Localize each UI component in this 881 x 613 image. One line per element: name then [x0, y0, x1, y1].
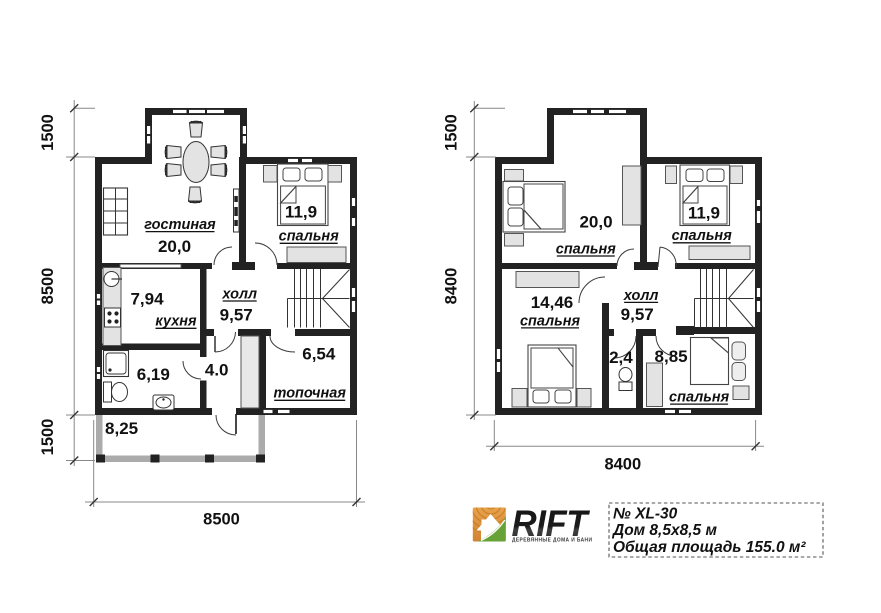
- svg-text:6,19: 6,19: [137, 365, 170, 384]
- svg-text:8500: 8500: [39, 268, 57, 305]
- svg-text:20,0: 20,0: [579, 213, 612, 232]
- svg-text:14,46: 14,46: [531, 293, 574, 312]
- svg-text:7,94: 7,94: [130, 290, 164, 309]
- svg-text:9,57: 9,57: [220, 306, 253, 325]
- svg-text:спальня: спальня: [556, 241, 617, 257]
- svg-text:1500: 1500: [39, 114, 57, 151]
- svg-text:топочная: топочная: [274, 386, 347, 402]
- svg-text:6,54: 6,54: [302, 344, 336, 363]
- svg-text:спальня: спальня: [669, 390, 730, 406]
- svg-text:кухня: кухня: [155, 314, 197, 330]
- svg-text:холл: холл: [221, 286, 257, 302]
- svg-text:спальня: спальня: [279, 229, 340, 245]
- svg-text:9,57: 9,57: [621, 305, 654, 324]
- svg-text:Дом 8,5х8,5 м: Дом 8,5х8,5 м: [611, 522, 717, 539]
- svg-text:20,0: 20,0: [158, 237, 191, 256]
- svg-text:гостиная: гостиная: [144, 217, 216, 233]
- svg-text:8,85: 8,85: [655, 347, 688, 366]
- svg-text:2,4: 2,4: [609, 348, 633, 367]
- svg-text:спальня: спальня: [672, 228, 733, 244]
- svg-text:1500: 1500: [39, 419, 57, 456]
- svg-text:1500: 1500: [443, 114, 461, 151]
- svg-text:8400: 8400: [604, 456, 641, 474]
- svg-text:спальня: спальня: [520, 313, 581, 329]
- svg-text:Общая площадь 155.0 м²: Общая площадь 155.0 м²: [613, 539, 806, 556]
- svg-text:№ XL-30: № XL-30: [613, 506, 678, 523]
- svg-text:11,9: 11,9: [285, 203, 317, 222]
- svg-text:8400: 8400: [443, 268, 461, 305]
- svg-text:8,25: 8,25: [105, 419, 138, 438]
- svg-text:холл: холл: [623, 288, 659, 304]
- svg-text:8500: 8500: [203, 511, 240, 529]
- svg-text:4.0: 4.0: [205, 361, 229, 380]
- svg-text:ДЕРЕВЯННЫЕ ДОМА И БАНИ: ДЕРЕВЯННЫЕ ДОМА И БАНИ: [512, 537, 592, 543]
- svg-text:11,9: 11,9: [688, 203, 720, 222]
